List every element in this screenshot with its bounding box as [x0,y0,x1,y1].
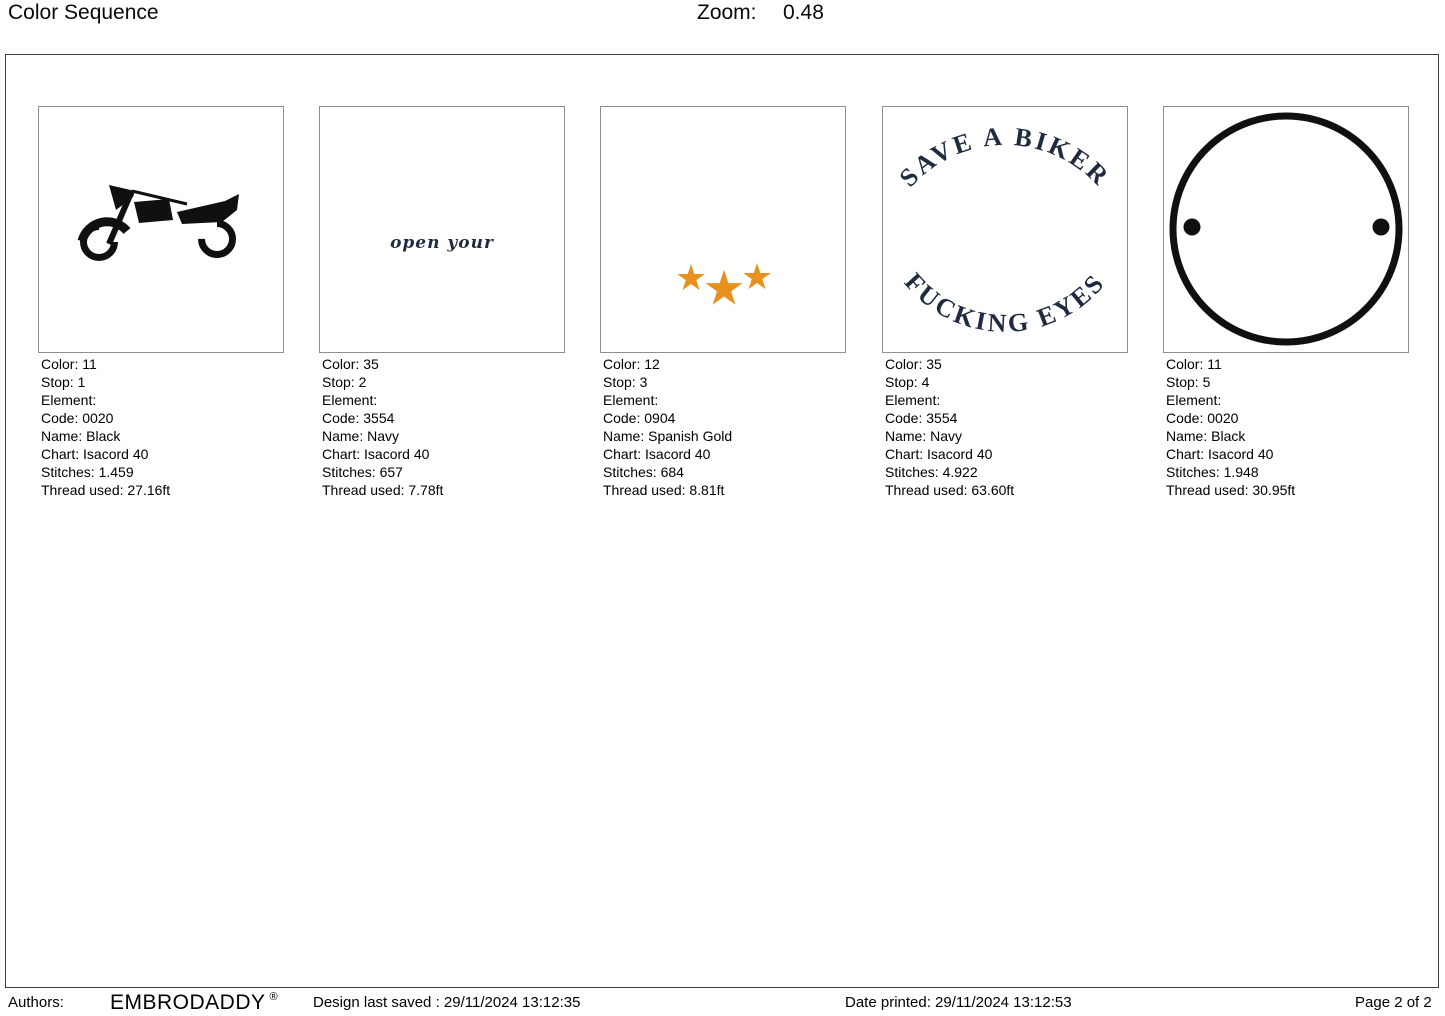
color-stop-5: Color: 11 Stop: 5 Element: Code: 0020 Na… [1163,55,1409,555]
stop-line: Stop: 4 [885,373,1147,391]
name-line: Name: Navy [885,427,1147,445]
color-line: Color: 11 [41,355,303,373]
name-line: Name: Black [41,427,303,445]
stitches-line: Stitches: 684 [603,463,865,481]
stitches-line: Stitches: 4.922 [885,463,1147,481]
chart-line: Chart: Isacord 40 [603,445,865,463]
code-line: Code: 0904 [603,409,865,427]
color-line: Color: 35 [322,355,584,373]
stitches-line: Stitches: 1.948 [1166,463,1428,481]
thread-used-line: Thread used: 8.81ft [603,481,865,499]
thumbnail-script-text: open your [319,106,565,353]
color-stop-1: Color: 11 Stop: 1 Element: Code: 0020 Na… [38,55,284,555]
name-line: Name: Navy [322,427,584,445]
color-stop-details: Color: 11 Stop: 1 Element: Code: 0020 Na… [41,355,303,499]
code-line: Code: 0020 [41,409,303,427]
element-line: Element: [41,391,303,409]
footer: Authors: EMBRODADDY® Design last saved :… [0,988,1445,1016]
stop-line: Stop: 5 [1166,373,1428,391]
name-line: Name: Black [1166,427,1428,445]
zoom-label: Zoom: [697,1,757,25]
thread-used-line: Thread used: 63.60ft [885,481,1147,499]
sequence-panel: Color: 11 Stop: 1 Element: Code: 0020 Na… [5,54,1439,988]
brand-name: EMBRODADDY® [110,991,278,1015]
thread-used-line: Thread used: 30.95ft [1166,481,1428,499]
chart-line: Chart: Isacord 40 [1166,445,1428,463]
chart-line: Chart: Isacord 40 [322,445,584,463]
color-stop-details: Color: 35 Stop: 2 Element: Code: 3554 Na… [322,355,584,499]
color-line: Color: 11 [1166,355,1428,373]
thumbnail-arc-text: SAVE A BIKER FUCKING EYES [882,106,1128,353]
code-line: Code: 0020 [1166,409,1428,427]
stop-line: Stop: 3 [603,373,865,391]
thumbnail-stars: ★ ★ ★ [600,106,846,353]
page-indicator: Page 2 of 2 [1355,994,1432,1011]
registered-mark: ® [270,991,279,1003]
page-title: Color Sequence [8,1,159,25]
color-stop-details: Color: 12 Stop: 3 Element: Code: 0904 Na… [603,355,865,499]
brand-text: EMBRODADDY [110,991,266,1014]
stop-line: Stop: 1 [41,373,303,391]
color-sequence-page: Color Sequence Zoom: 0.48 [0,0,1445,1016]
color-stop-2: open your Color: 35 Stop: 2 Element: Cod… [319,55,565,555]
element-line: Element: [603,391,865,409]
star-icon: ★ [702,265,745,313]
color-stop-3: ★ ★ ★ Color: 12 Stop: 3 Element: Code: 0… [600,55,846,555]
design-last-saved: Design last saved : 29/11/2024 13:12:35 [313,994,580,1011]
color-stop-4: SAVE A BIKER FUCKING EYES Color: 35 Stop… [882,55,1128,555]
date-printed: Date printed: 29/11/2024 13:12:53 [845,994,1072,1011]
embroidered-script-text: open your [320,233,564,253]
thumbnail-circle [1163,106,1409,353]
code-line: Code: 3554 [885,409,1147,427]
arc-text-bottom: FUCKING EYES [899,267,1111,338]
stitches-line: Stitches: 1.459 [41,463,303,481]
svg-text:SAVE A BIKER: SAVE A BIKER [894,122,1116,193]
element-line: Element: [885,391,1147,409]
thumbnail-motorcycle [38,106,284,353]
color-stop-details: Color: 11 Stop: 5 Element: Code: 0020 Na… [1166,355,1428,499]
star-icon: ★ [741,260,773,296]
element-line: Element: [1166,391,1428,409]
color-line: Color: 35 [885,355,1147,373]
thread-used-line: Thread used: 27.16ft [41,481,303,499]
thread-used-line: Thread used: 7.78ft [322,481,584,499]
motorcycle-icon [39,107,283,352]
stop-line: Stop: 2 [322,373,584,391]
code-line: Code: 3554 [322,409,584,427]
color-stop-details: Color: 35 Stop: 4 Element: Code: 3554 Na… [885,355,1147,499]
circle-outline-icon [1164,107,1408,352]
arc-text-design: SAVE A BIKER FUCKING EYES [883,107,1127,352]
arc-text-top: SAVE A BIKER [894,122,1116,193]
chart-line: Chart: Isacord 40 [885,445,1147,463]
chart-line: Chart: Isacord 40 [41,445,303,463]
authors-label: Authors: [8,994,64,1011]
zoom-value: 0.48 [783,1,824,25]
name-line: Name: Spanish Gold [603,427,865,445]
element-line: Element: [322,391,584,409]
stitches-line: Stitches: 657 [322,463,584,481]
svg-text:FUCKING EYES: FUCKING EYES [899,267,1111,338]
color-line: Color: 12 [603,355,865,373]
